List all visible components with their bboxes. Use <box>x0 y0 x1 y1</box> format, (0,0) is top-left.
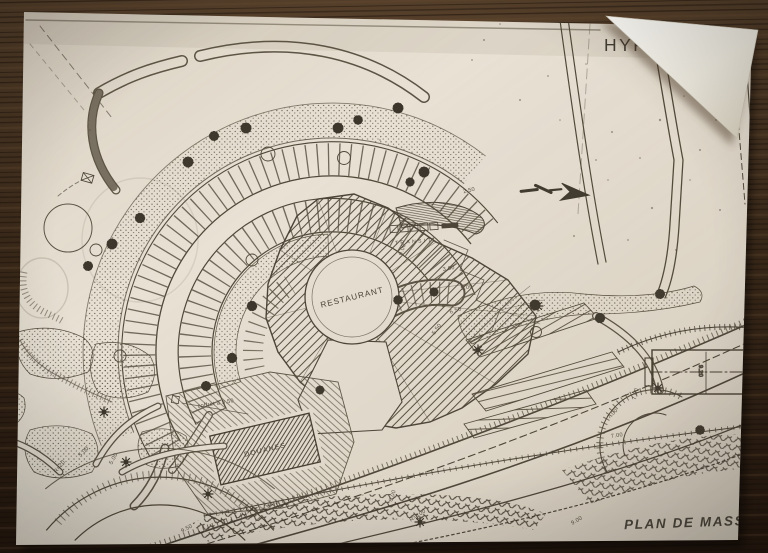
photo-vignette <box>0 0 768 553</box>
photographed-site-plan: RESTAURANT TRANSIT 9.00 3.00 5.00 6.50 5… <box>0 0 768 553</box>
site-plan-photo: RESTAURANT TRANSIT 9.00 3.00 5.00 6.50 5… <box>0 0 768 553</box>
